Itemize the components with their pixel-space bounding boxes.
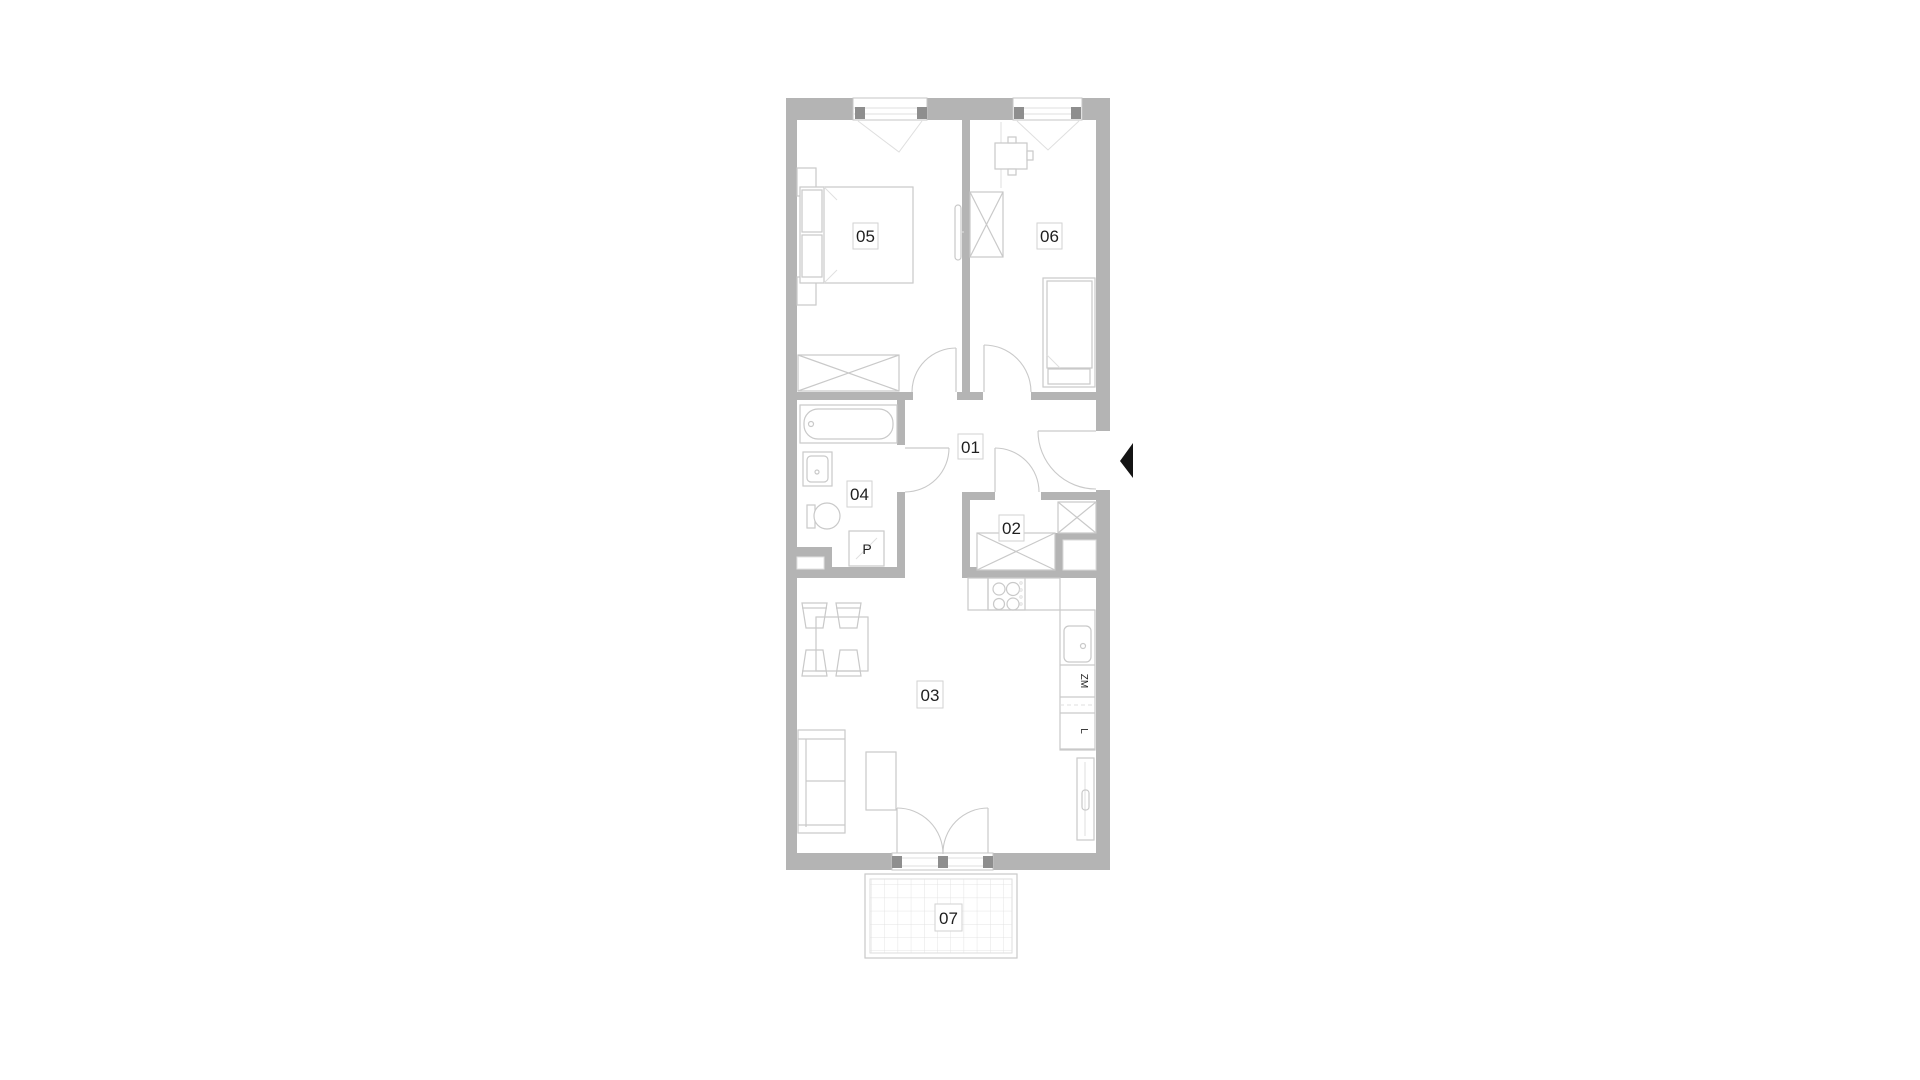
door-swing-arc — [1038, 431, 1096, 489]
fridge-label: L — [1078, 728, 1089, 734]
wall-duct-right — [824, 547, 832, 578]
svg-text:06: 06 — [1040, 227, 1059, 246]
entrance-opening — [1096, 431, 1110, 490]
wall-right-lower — [1096, 490, 1110, 870]
washbasin — [803, 452, 832, 486]
door-post — [892, 856, 902, 868]
window-post — [1014, 107, 1024, 119]
window-room06 — [1013, 98, 1082, 150]
door-swing-arc — [984, 345, 1031, 392]
room-label-07: 07 — [935, 904, 962, 931]
balcony-door — [892, 808, 993, 870]
wardrobe — [798, 355, 899, 391]
wall-bottom-right — [993, 853, 1110, 870]
room-label-05: 05 — [853, 223, 878, 249]
chair — [802, 650, 827, 676]
wall-top-middle — [927, 98, 1013, 120]
single-bed — [1043, 278, 1095, 387]
door-swing-arc — [943, 808, 988, 854]
room-label-01: 01 — [958, 434, 983, 459]
toilet — [807, 503, 840, 529]
window-post — [1071, 107, 1081, 119]
coffee-table — [866, 752, 896, 810]
radiator — [1077, 758, 1094, 840]
chair — [836, 650, 861, 676]
room-label-04: 04 — [847, 481, 872, 507]
door-room06 — [984, 345, 1031, 392]
living-room-furniture — [798, 603, 896, 833]
wall-right-upper — [1096, 98, 1110, 431]
room06-furniture — [970, 122, 1095, 387]
wall-hall-top-c — [1031, 392, 1096, 400]
wall-bathroom-right-lower — [897, 492, 905, 578]
wall-bedrooms-divider — [962, 118, 970, 392]
chair — [802, 603, 827, 628]
svg-text:03: 03 — [921, 686, 940, 705]
svg-text:01: 01 — [961, 438, 980, 457]
wall-bathroom-right-upper — [897, 400, 905, 445]
window-swing-lines — [858, 121, 922, 152]
wardrobe — [970, 192, 1003, 257]
door-swing-arc — [905, 448, 949, 492]
door-swing-arc — [897, 808, 943, 854]
wall-shaft-left — [1055, 533, 1063, 578]
door-swing-arc — [912, 348, 956, 392]
svg-text:05: 05 — [856, 227, 875, 246]
bathroom-duct-niche — [797, 557, 824, 569]
window-room05 — [853, 98, 927, 152]
kitchen: ZM L — [968, 578, 1095, 840]
door-post — [938, 856, 948, 868]
svg-text:07: 07 — [939, 909, 958, 928]
sofa — [798, 730, 845, 833]
entrance-arrow — [1120, 443, 1133, 478]
door-bathroom — [905, 448, 949, 492]
room-label-02: 02 — [999, 515, 1024, 541]
door-room05 — [912, 348, 956, 392]
desk — [995, 137, 1033, 175]
room05-furniture — [797, 168, 964, 391]
wall-hall-top-b — [957, 392, 983, 400]
wall-room02-left — [962, 492, 970, 578]
desk-knob — [1027, 151, 1033, 160]
svg-text:02: 02 — [1002, 519, 1021, 538]
door-swing-arc — [995, 448, 1039, 492]
door-post — [983, 856, 993, 868]
window-post — [855, 107, 865, 119]
floor-plan-page: P — [0, 0, 1920, 1080]
wall-left — [786, 98, 797, 870]
door-room02 — [995, 448, 1039, 492]
svg-text:04: 04 — [850, 485, 869, 504]
chair — [836, 603, 861, 628]
washing-machine: P — [849, 531, 884, 566]
wall-room02-top-a — [962, 492, 995, 500]
room-label-06: 06 — [1037, 223, 1062, 249]
wall-bottom-left — [786, 853, 892, 870]
dining-set — [802, 603, 868, 676]
dishwasher-label: ZM — [1078, 674, 1089, 688]
desk-knob — [1008, 137, 1016, 143]
wall-hall-top-a — [797, 392, 913, 400]
entrance-door — [1038, 431, 1110, 490]
wardrobe — [1058, 502, 1096, 533]
room-label-03: 03 — [917, 681, 943, 708]
window-post — [917, 107, 927, 119]
floor-plan-drawing: P — [0, 0, 1920, 1080]
washing-machine-label: P — [862, 541, 871, 557]
bathtub — [800, 405, 897, 443]
toilet-bowl — [814, 503, 840, 529]
installation-shaft — [1063, 540, 1096, 570]
desk-knob — [1008, 169, 1016, 175]
wall-room02-top-b — [1041, 492, 1096, 500]
